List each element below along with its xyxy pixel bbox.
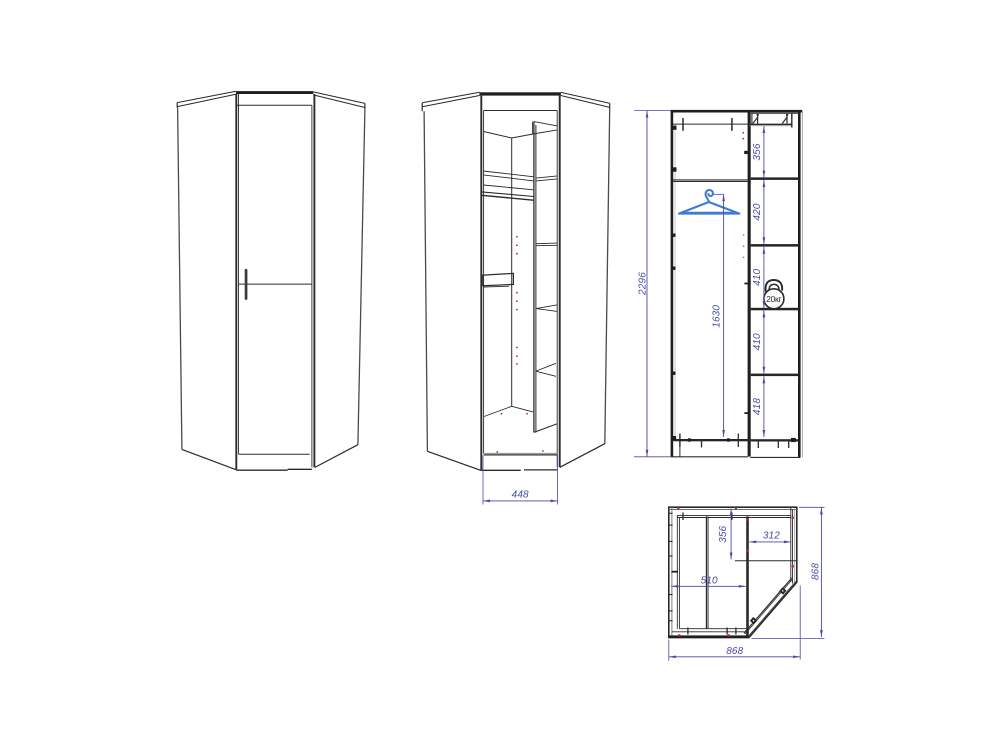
svg-text:2296: 2296 <box>638 272 649 296</box>
svg-text:510: 510 <box>701 575 718 586</box>
svg-text:356: 356 <box>752 143 763 160</box>
svg-text:356: 356 <box>718 525 729 542</box>
svg-text:20кг: 20кг <box>766 294 781 304</box>
svg-text:410: 410 <box>752 333 763 350</box>
svg-text:448: 448 <box>512 489 529 500</box>
svg-text:1630: 1630 <box>712 305 723 328</box>
svg-text:410: 410 <box>752 268 763 285</box>
svg-text:312: 312 <box>763 530 780 541</box>
svg-text:868: 868 <box>726 646 743 657</box>
svg-text:418: 418 <box>752 398 763 415</box>
svg-text:420: 420 <box>752 203 763 220</box>
svg-text:868: 868 <box>811 563 822 580</box>
